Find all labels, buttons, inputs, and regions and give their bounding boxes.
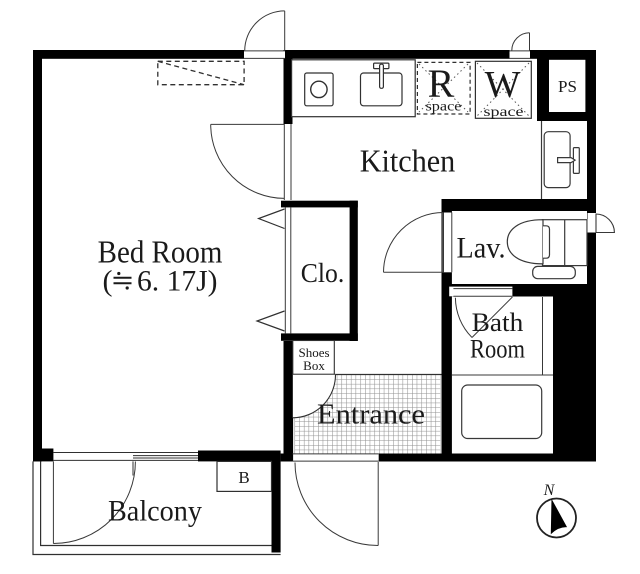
- svg-text:Room: Room: [470, 335, 525, 364]
- svg-text:Balcony: Balcony: [108, 495, 202, 528]
- svg-text:B: B: [238, 468, 249, 487]
- svg-text:space: space: [484, 105, 524, 120]
- svg-text:W: W: [485, 64, 521, 106]
- svg-text:PS: PS: [558, 77, 577, 96]
- svg-text:Entrance: Entrance: [317, 400, 425, 431]
- svg-text:6. 17J): 6. 17J): [137, 265, 218, 298]
- svg-text:Kitchen: Kitchen: [360, 143, 456, 179]
- svg-text:space: space: [426, 100, 462, 115]
- svg-text:Lav.: Lav.: [457, 232, 506, 265]
- svg-text:N: N: [543, 482, 556, 499]
- svg-text:Bath: Bath: [472, 308, 524, 337]
- svg-text:(: (: [103, 265, 113, 298]
- svg-text:Clo.: Clo.: [301, 258, 345, 288]
- svg-text:Box: Box: [303, 358, 325, 373]
